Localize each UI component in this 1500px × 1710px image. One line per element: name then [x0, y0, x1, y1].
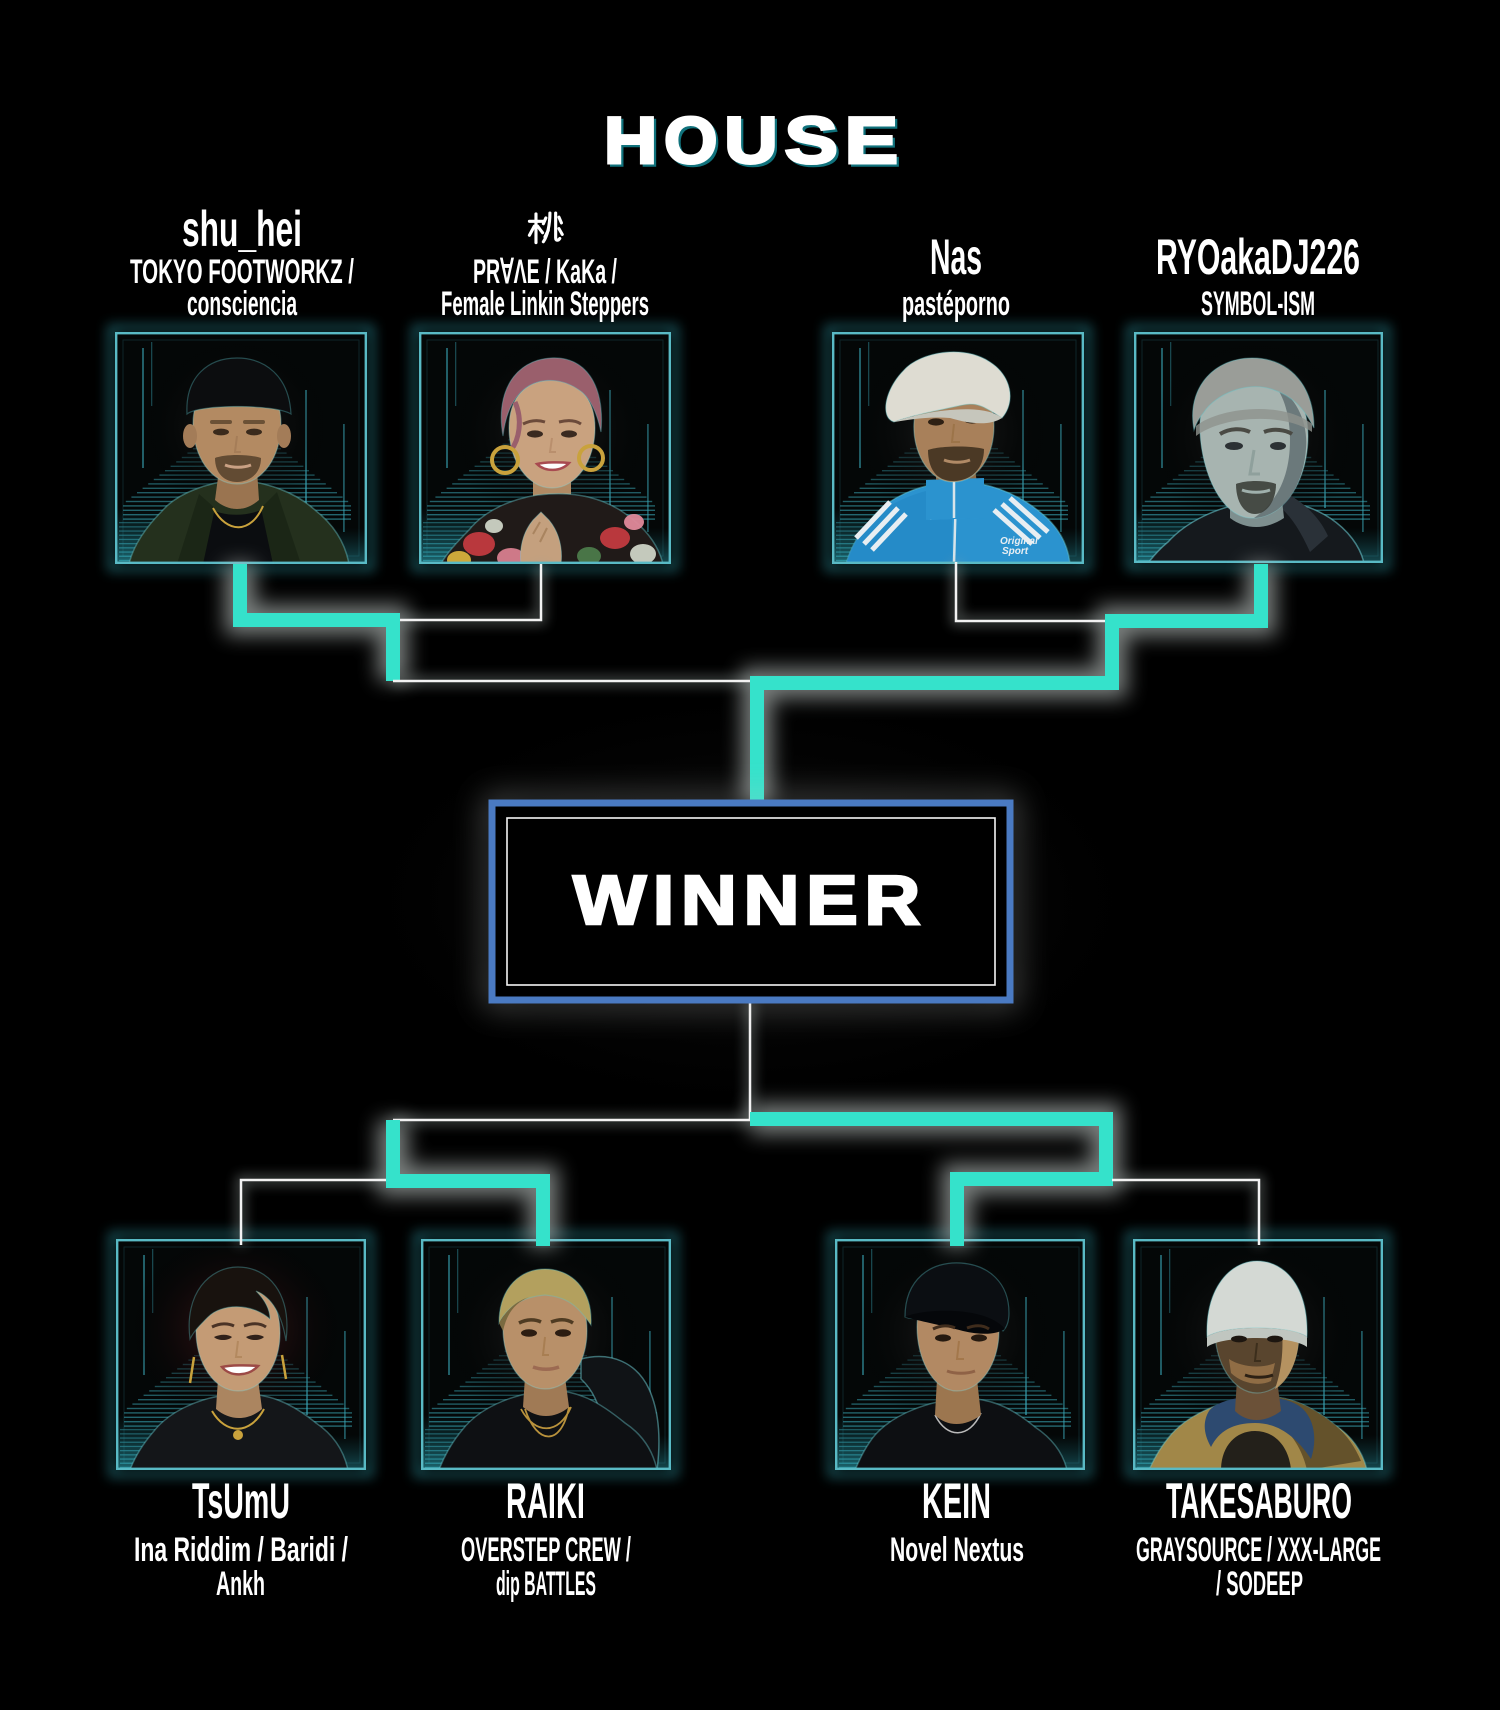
- svg-text:O: O: [664, 103, 717, 177]
- svg-text:Sport: Sport: [1002, 546, 1029, 557]
- svg-text:consciencia: consciencia: [187, 285, 298, 323]
- svg-text:Ina Riddim / Baridi /: Ina Riddim / Baridi /: [134, 1531, 348, 1569]
- svg-text:H: H: [604, 103, 657, 177]
- svg-text:pastéporno: pastéporno: [902, 285, 1010, 323]
- svg-text:WINNER: WINNER: [573, 861, 927, 939]
- svg-text:RYOakaDJ226: RYOakaDJ226: [1156, 229, 1360, 285]
- svg-text:dip BATTLES: dip BATTLES: [496, 1565, 596, 1603]
- svg-text:Novel Nextus: Novel Nextus: [890, 1531, 1024, 1569]
- svg-text:/ SODEEP: / SODEEP: [1216, 1565, 1303, 1603]
- svg-text:SYMBOL-ISM: SYMBOL-ISM: [1201, 285, 1315, 323]
- svg-text:TsUmU: TsUmU: [192, 1473, 290, 1529]
- svg-text:Female Linkin Steppers: Female Linkin Steppers: [441, 285, 649, 323]
- svg-text:GRAYSOURCE / XXX-LARGE: GRAYSOURCE / XXX-LARGE: [1136, 1531, 1381, 1569]
- svg-text:shu_hei: shu_hei: [182, 201, 302, 257]
- svg-text:RAIKI: RAIKI: [506, 1473, 585, 1529]
- svg-text:Ankh: Ankh: [216, 1565, 265, 1603]
- svg-text:E: E: [845, 103, 898, 177]
- svg-text:Nas: Nas: [930, 229, 982, 285]
- svg-text:KEIN: KEIN: [922, 1473, 991, 1529]
- svg-text:S: S: [785, 103, 838, 177]
- svg-text:U: U: [724, 103, 777, 177]
- svg-text:OVERSTEP CREW /: OVERSTEP CREW /: [461, 1531, 631, 1569]
- svg-text:TAKESABURO: TAKESABURO: [1166, 1473, 1352, 1529]
